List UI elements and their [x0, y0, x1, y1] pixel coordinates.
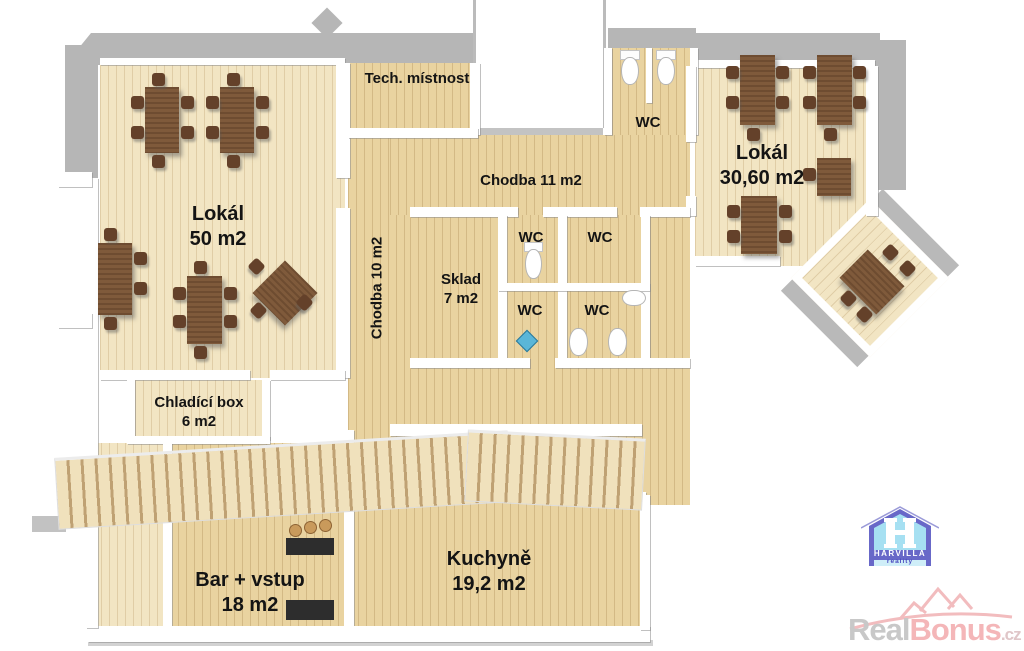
- wall: [555, 358, 690, 368]
- table: [740, 55, 775, 125]
- wall: [470, 63, 480, 135]
- chair: [803, 168, 816, 181]
- wall: [604, 48, 612, 135]
- table: [817, 55, 852, 125]
- chair: [227, 73, 240, 86]
- chair: [779, 230, 792, 243]
- wall: [88, 626, 650, 642]
- chair: [104, 317, 117, 330]
- chair: [727, 205, 740, 218]
- wall: [866, 66, 878, 216]
- table: [220, 87, 254, 153]
- table: [145, 87, 179, 153]
- chair: [206, 126, 219, 139]
- toilet: [525, 249, 542, 279]
- wall: [58, 172, 92, 187]
- table: [187, 276, 222, 344]
- wall: [543, 207, 617, 217]
- wall: [876, 40, 906, 190]
- toilet: [621, 57, 639, 85]
- harvilla-logo-subtitle: reality: [861, 558, 939, 565]
- chair: [747, 128, 760, 141]
- wall: [340, 33, 480, 63]
- table: [817, 158, 851, 196]
- chair: [779, 205, 792, 218]
- chair: [853, 96, 866, 109]
- room-label-chladici: Chladící box6 m2: [154, 394, 243, 432]
- chair: [803, 66, 816, 79]
- wall: [336, 208, 350, 378]
- chair: [256, 96, 269, 109]
- wall: [127, 380, 135, 440]
- wall: [58, 313, 92, 328]
- room-label-chodba11: Chodba 11 m2: [480, 172, 582, 191]
- wall: [270, 370, 345, 380]
- chair: [824, 128, 837, 141]
- wall: [558, 215, 567, 285]
- harvilla-logo-title: HARVILLA: [861, 549, 939, 558]
- wall: [336, 63, 350, 178]
- room-label-tech: Tech. místnost: [365, 70, 470, 89]
- wall: [695, 256, 780, 266]
- chair: [224, 287, 237, 300]
- wall: [100, 370, 250, 380]
- room-label-wc-a: WC: [519, 229, 544, 248]
- chair: [227, 155, 240, 168]
- chair: [181, 126, 194, 139]
- chair: [224, 315, 237, 328]
- table: [98, 243, 132, 315]
- chair: [194, 261, 207, 274]
- room-label-lokal50: Lokál50 m2: [190, 202, 247, 252]
- wall: [348, 128, 478, 138]
- room-label-kuchyne: Kuchyně19,2 m2: [447, 547, 531, 597]
- chair: [803, 96, 816, 109]
- bar-stool: [289, 524, 302, 537]
- chair: [776, 96, 789, 109]
- wall: [686, 66, 696, 142]
- realbonus-watermark: RealBonus.cz: [840, 585, 1024, 649]
- room-label-lokal3060: Lokál30,60 m2: [720, 141, 805, 191]
- room-label-wc-b: WC: [588, 229, 613, 248]
- chair: [181, 96, 194, 109]
- bar-stool: [319, 519, 332, 532]
- floor-plan: Tech. místnost Lokál50 m2 Chodba 11 m2 W…: [0, 0, 1024, 651]
- wall: [646, 48, 652, 103]
- wall: [640, 495, 650, 630]
- wall: [127, 436, 270, 444]
- chair: [726, 66, 739, 79]
- room-label-wc-d: WC: [585, 302, 610, 321]
- chair: [776, 66, 789, 79]
- toilet: [569, 328, 588, 356]
- chair: [131, 96, 144, 109]
- room-label-wc-c: WC: [518, 302, 543, 321]
- wall: [65, 45, 98, 180]
- room-label-chodba10: Chodba 10 m2: [369, 237, 388, 340]
- chair: [256, 126, 269, 139]
- room-label-bar: Bar + vstup18 m2: [195, 568, 304, 618]
- chair: [194, 346, 207, 359]
- sink: [622, 290, 646, 306]
- realbonus-wordmark: RealBonus.cz: [848, 612, 1021, 648]
- chair: [134, 252, 147, 265]
- chair: [173, 315, 186, 328]
- wall: [410, 358, 530, 368]
- chair: [152, 73, 165, 86]
- vestibule: [476, 0, 603, 130]
- wall: [558, 290, 567, 365]
- chair: [853, 66, 866, 79]
- chair: [726, 96, 739, 109]
- staircase: [464, 429, 646, 510]
- chair: [152, 155, 165, 168]
- wall: [86, 178, 98, 628]
- toilet: [657, 57, 675, 85]
- chair: [173, 287, 186, 300]
- bar-stool: [304, 521, 317, 534]
- wall: [262, 380, 270, 440]
- table: [741, 196, 777, 254]
- realbonus-word-bonus: Bonus: [909, 612, 1000, 647]
- chair: [727, 230, 740, 243]
- realbonus-word-real: Real: [848, 612, 909, 647]
- chair: [131, 126, 144, 139]
- chair: [206, 96, 219, 109]
- chair: [134, 282, 147, 295]
- realbonus-suffix-cz: .cz: [1001, 625, 1021, 644]
- bar-counter: [286, 538, 334, 555]
- toilet: [608, 328, 627, 356]
- chair: [104, 228, 117, 241]
- room-label-wc-top: WC: [636, 114, 661, 133]
- wall: [100, 58, 345, 65]
- room-label-sklad: Sklad7 m2: [441, 271, 481, 309]
